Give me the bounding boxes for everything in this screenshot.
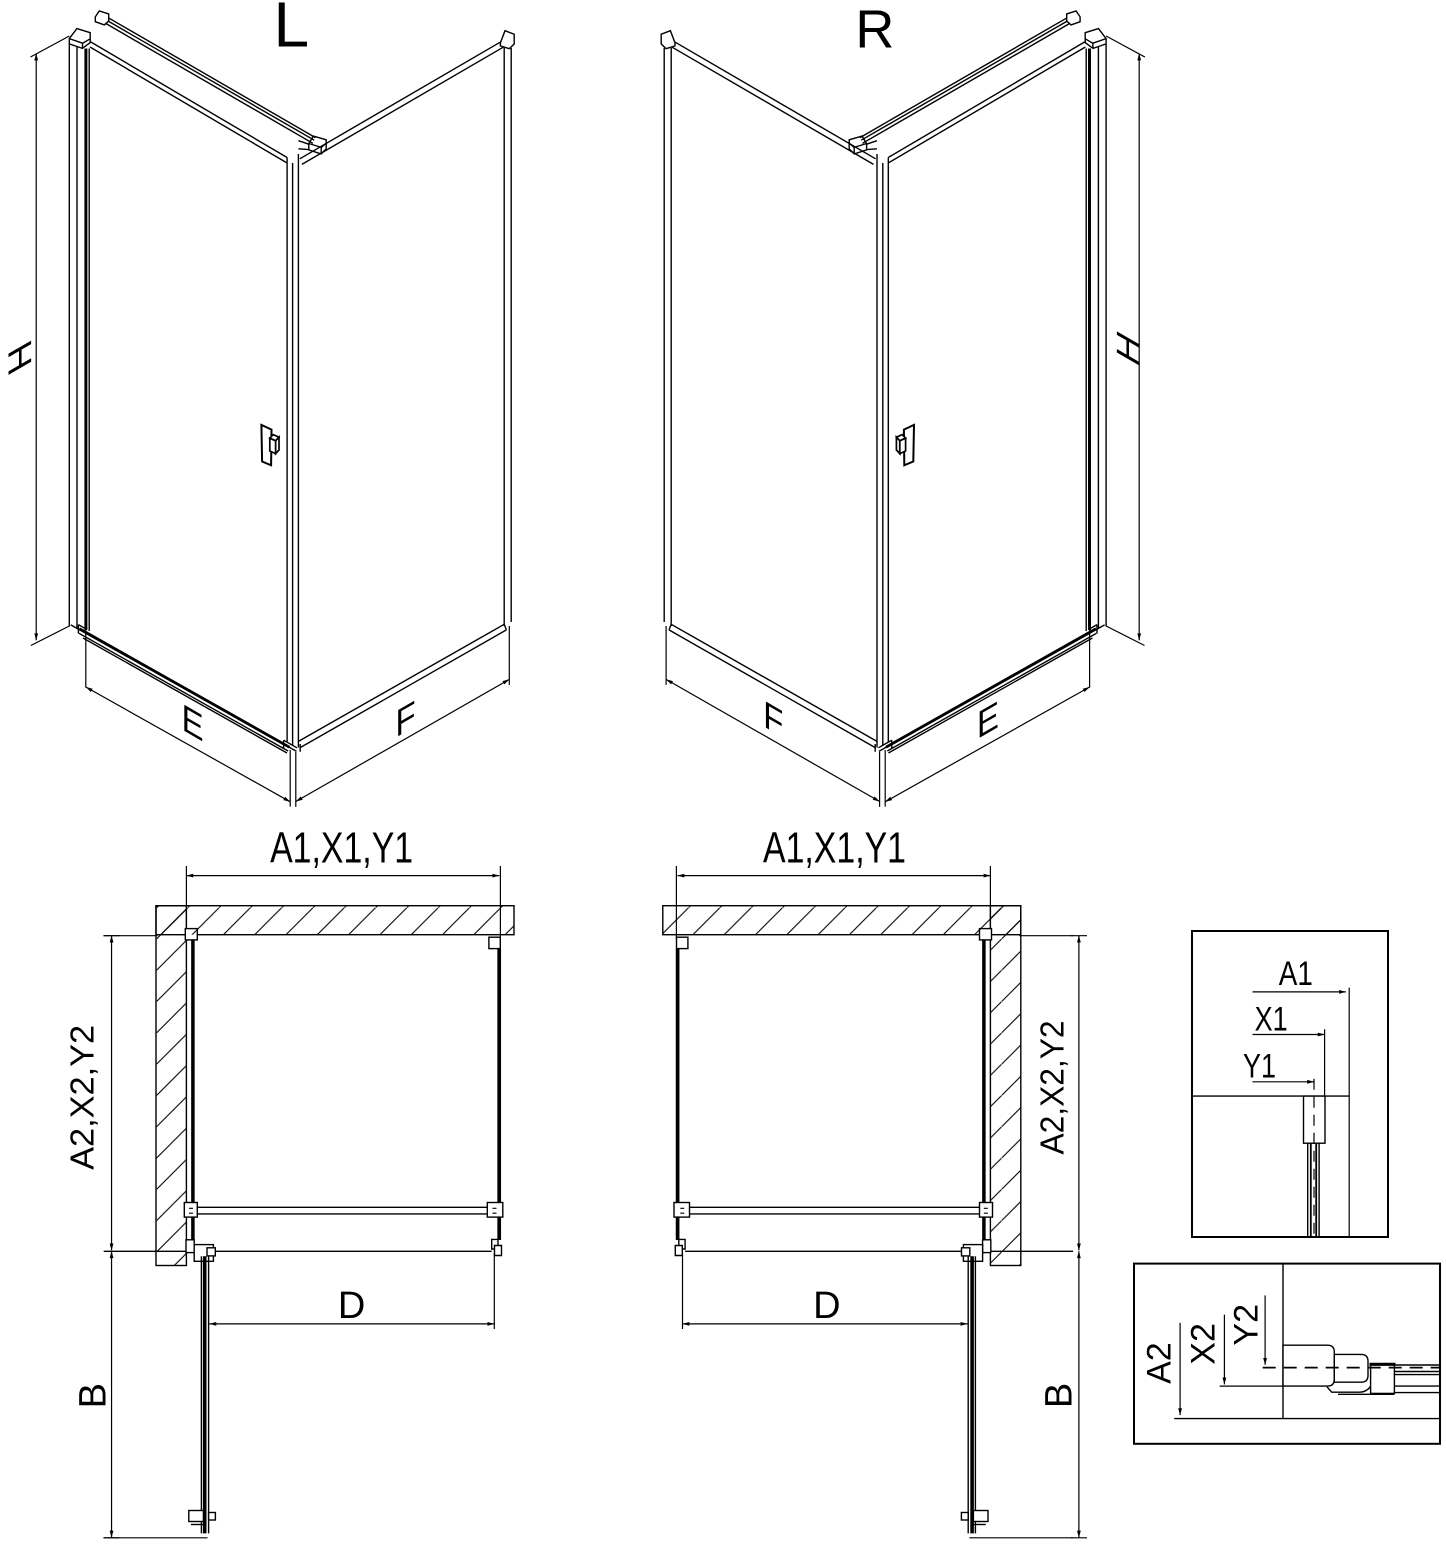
svg-text:F: F bbox=[396, 693, 416, 747]
svg-text:X2: X2 bbox=[1184, 1323, 1222, 1365]
svg-text:F: F bbox=[763, 693, 783, 747]
svg-text:H: H bbox=[1111, 325, 1147, 373]
svg-text:L: L bbox=[274, 0, 310, 60]
svg-text:A2: A2 bbox=[1141, 1342, 1179, 1384]
svg-text:D: D bbox=[813, 1285, 840, 1327]
svg-text:Y1: Y1 bbox=[1243, 1048, 1276, 1086]
svg-text:B: B bbox=[1038, 1383, 1080, 1408]
svg-text:D: D bbox=[338, 1285, 365, 1327]
svg-text:A2,X2,Y2: A2,X2,Y2 bbox=[1034, 1021, 1071, 1155]
svg-text:A2,X2,Y2: A2,X2,Y2 bbox=[64, 1025, 101, 1170]
svg-text:H: H bbox=[1, 334, 37, 382]
svg-text:A1,X1,Y1: A1,X1,Y1 bbox=[763, 824, 906, 873]
svg-text:A1: A1 bbox=[1279, 955, 1313, 993]
svg-text:X1: X1 bbox=[1255, 1000, 1288, 1038]
svg-text:Y2: Y2 bbox=[1227, 1304, 1265, 1346]
svg-text:R: R bbox=[855, 0, 894, 60]
svg-text:B: B bbox=[72, 1383, 114, 1408]
svg-text:A1,X1,Y1: A1,X1,Y1 bbox=[270, 824, 413, 873]
